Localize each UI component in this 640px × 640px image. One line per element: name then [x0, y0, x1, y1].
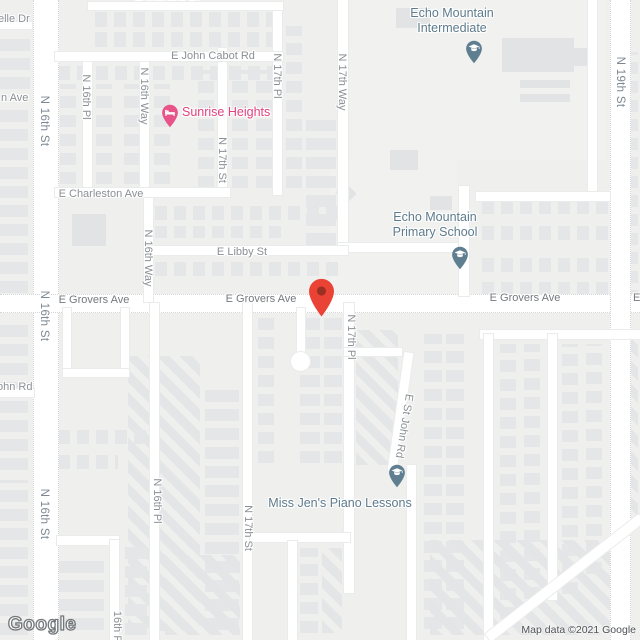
house-row [306, 120, 336, 245]
house-row [155, 206, 343, 220]
house-row [165, 555, 240, 635]
house-row [322, 548, 342, 633]
house-row [58, 455, 118, 469]
building [520, 80, 570, 88]
house-row [58, 430, 148, 444]
house-row [155, 262, 343, 276]
school-building [430, 196, 452, 210]
house-row [300, 548, 318, 633]
house-row [154, 84, 170, 184]
road-label: N 16th Way [138, 67, 150, 124]
house-row [125, 545, 147, 635]
poi-label-echo-mountain-intermediate[interactable]: Echo Mountain Intermediate [410, 6, 493, 35]
road-label: elle Dr [0, 13, 30, 25]
road-label: N 19th St [614, 57, 626, 108]
road [250, 533, 350, 542]
road-label: E [633, 292, 640, 304]
house-row [95, 12, 275, 27]
poi-label-echo-mountain-primary-school[interactable]: Echo Mountain Primary School [393, 210, 478, 239]
road-label: N 17th St [242, 505, 254, 551]
red-map-marker[interactable] [308, 278, 335, 323]
map-canvas[interactable]: E Michelle Dr elle Dr E John Cabot Rd N … [0, 0, 640, 640]
road-label: E Libby St [217, 246, 267, 258]
house-row [324, 318, 342, 463]
road [63, 308, 71, 376]
road-label: N 17th Way [336, 53, 348, 110]
building [72, 214, 106, 246]
house-row [0, 108, 28, 293]
road-label: N 16th St [38, 96, 50, 147]
road [338, 0, 348, 250]
road [476, 192, 610, 201]
house-row [96, 84, 112, 184]
road-label: n Ave [1, 92, 28, 104]
road-label: E Grovers Ave [490, 292, 561, 304]
house-row [198, 70, 214, 188]
cul-de-sac [291, 352, 310, 371]
road-label: N 16th Pl [80, 74, 92, 119]
road-label: ohn Rd [0, 381, 32, 393]
house-row [0, 34, 30, 89]
school-building [390, 150, 418, 170]
road-label: E John Cabot Rd [171, 50, 255, 62]
road [121, 308, 129, 376]
road [588, 0, 597, 195]
road-label: E Grovers Ave [59, 294, 130, 306]
road [338, 243, 468, 252]
house-row [155, 226, 285, 238]
road [88, 2, 283, 10]
house-row [286, 26, 302, 188]
school-building [502, 38, 574, 72]
road-label: N 16th Pl [151, 478, 163, 523]
school-pin-icon[interactable] [388, 464, 406, 493]
road [273, 6, 282, 195]
road-label: N 17th Pl [271, 53, 283, 98]
google-watermark[interactable]: Google [8, 614, 76, 636]
road [243, 303, 252, 640]
house-row [482, 200, 608, 214]
road-label: E Grovers Ave [226, 293, 297, 305]
road [484, 334, 493, 640]
map-attribution: Map data ©2021 Google [521, 624, 636, 636]
road [63, 369, 129, 377]
house-row [258, 318, 274, 463]
poi-label-sunrise-heights[interactable]: Sunrise Heights [182, 105, 270, 120]
road [480, 330, 640, 339]
poi-label-miss-jens-piano-lessons[interactable]: Miss Jen's Piano Lessons [268, 496, 411, 511]
road [548, 334, 557, 600]
road-label: E Michelle Dr [135, 0, 200, 3]
house-row [60, 84, 76, 184]
house-row [95, 32, 275, 47]
road [288, 541, 297, 640]
road-label: N 16th St [38, 489, 50, 540]
road [150, 303, 159, 640]
lodging-pin-icon[interactable] [161, 104, 179, 133]
road-label: 16th Pl [111, 611, 123, 640]
house-row [0, 480, 28, 635]
school-pin-icon[interactable] [465, 40, 483, 69]
house-row [482, 226, 608, 240]
building [520, 94, 570, 102]
road-label: N 17th Pl [345, 314, 357, 359]
house-row [256, 70, 272, 188]
road-label: N 16th Way [142, 229, 154, 286]
school-pin-icon[interactable] [451, 246, 469, 275]
road-label: N 16th St [38, 291, 50, 342]
road [407, 465, 416, 640]
house-row [482, 258, 608, 272]
road-label: N 17th St [216, 137, 228, 183]
road [297, 308, 305, 358]
road [459, 186, 469, 296]
road-label: E Charleston Ave [59, 188, 144, 200]
house-row [232, 70, 248, 188]
